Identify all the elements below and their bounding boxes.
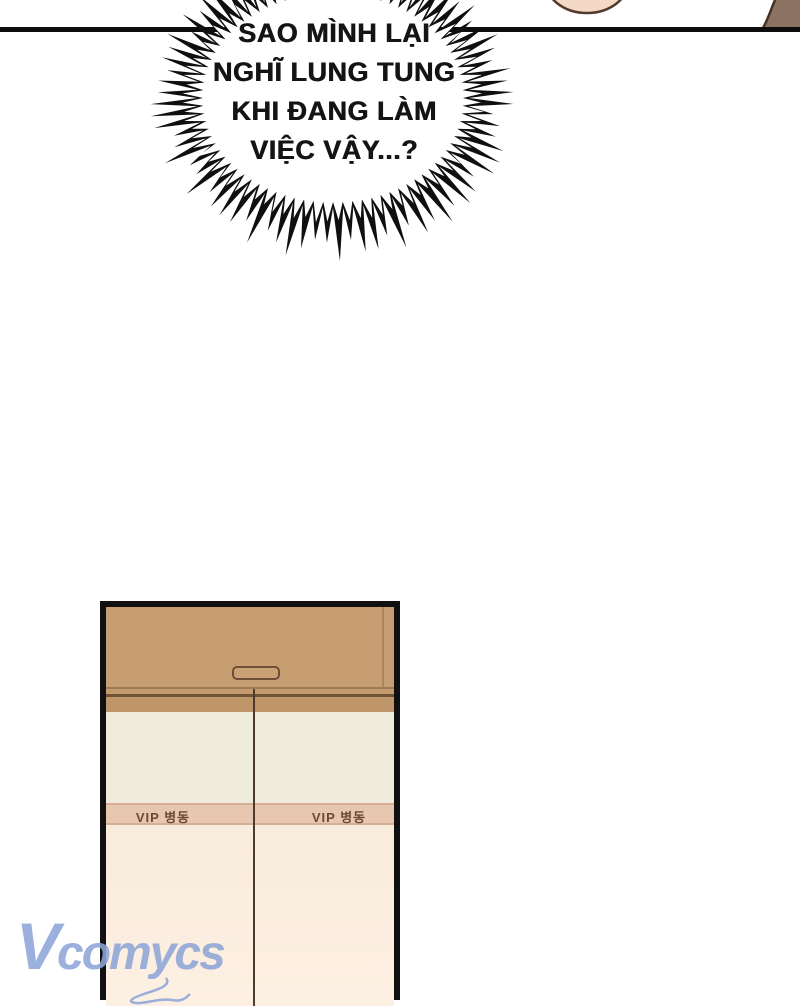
vip-label-right: VIP 병동 [294,807,384,826]
door-header-inner-line [382,607,384,687]
watermark-initial: V [16,909,57,983]
watermark: Vcomycs [16,908,224,984]
door-top-band [106,697,394,712]
bubble-line: VIỆC VẬY...? [193,131,475,170]
door-divider [253,689,255,1006]
vip-band: VIP 병동 VIP 병동 [106,803,394,825]
character-hair-shape [755,0,800,28]
watermark-text: comycs [57,927,224,980]
comic-page: { "bubble": { "lines": ["SAO MÌNH LẠI", … [0,0,800,1000]
bubble-line: SAO MÌNH LẠI [193,14,475,53]
bubble-line: NGHĨ LUNG TUNG [193,53,475,92]
door-upper-panels [106,712,394,803]
vip-label-left: VIP 병동 [118,807,208,826]
character-skin-shape [535,0,645,16]
door-plate [232,666,280,680]
door-header [106,607,394,687]
bubble-line: KHI ĐANG LÀM [193,92,475,131]
thought-bubble-text: SAO MÌNH LẠI NGHĨ LUNG TUNG KHI ĐANG LÀM… [193,14,475,170]
watermark-swirl [106,976,226,1006]
